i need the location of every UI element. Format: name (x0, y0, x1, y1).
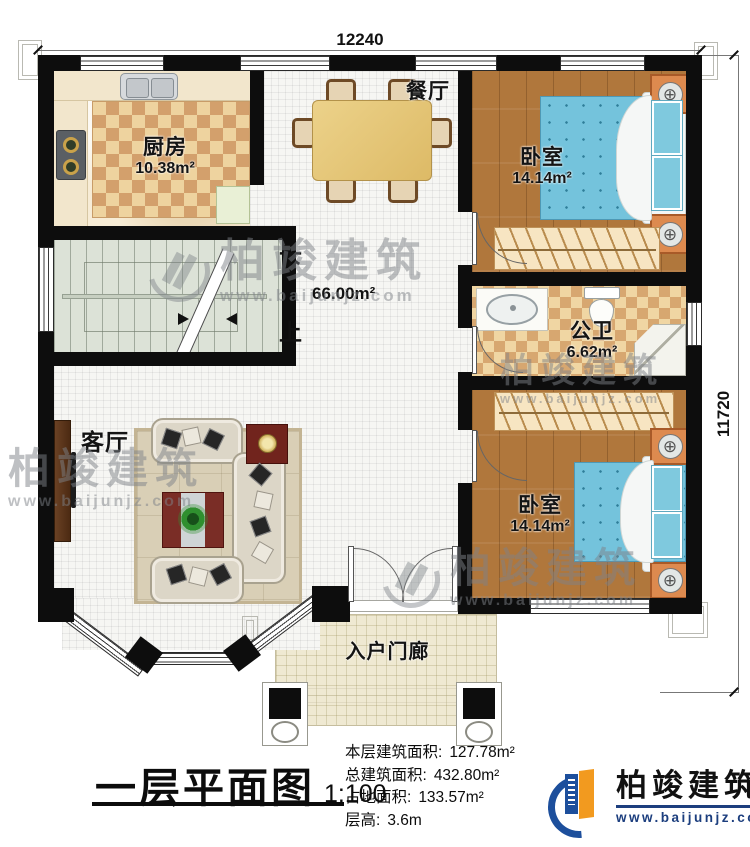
nightstand: ⊕ (650, 428, 690, 465)
nightstand-lamp-icon: ⊕ (658, 434, 683, 459)
dimension-right-label: 11720 (714, 383, 732, 445)
window (415, 55, 497, 71)
wall (458, 483, 472, 614)
bathroom-sink-counter (476, 288, 548, 331)
nightstand-lamp-icon: ⊕ (658, 568, 683, 593)
stove (56, 130, 86, 180)
dimension-top-label: 12240 (320, 30, 400, 50)
room-label-bathroom: 公卫 6.62m² (542, 320, 642, 361)
dining-table (312, 100, 432, 181)
title-underline (92, 802, 344, 806)
sofa-pillow (181, 426, 201, 446)
stat-footprint-area: 占地面积:133.57m² (345, 787, 515, 810)
room-label-kitchen: 厨房 10.38m² (105, 136, 225, 177)
entry-door-leaf (452, 546, 458, 602)
window (530, 598, 650, 614)
porch-column (262, 682, 308, 746)
stairs-arrow-left (226, 313, 237, 325)
wall (38, 55, 54, 247)
stat-total-area: 总建筑面积:432.80m² (345, 765, 515, 788)
porch-column (456, 682, 502, 746)
hall-area-label: 66.00m² (312, 284, 375, 304)
wall (38, 352, 296, 366)
window (80, 55, 164, 71)
room-label-dining: 餐厅 (388, 80, 468, 104)
dimension-line-top (38, 50, 702, 51)
stairs-arrow-right (178, 313, 189, 325)
room-label-porch: 入户门廊 (330, 641, 445, 663)
wall (458, 376, 702, 390)
wall (38, 332, 54, 594)
table-lamp (258, 434, 277, 453)
entry-door-leaf (348, 546, 354, 602)
stat-floor-area: 本层建筑面积:127.78m² (345, 742, 515, 765)
wall (38, 226, 296, 240)
stair-up-label: 上 (279, 313, 302, 347)
door-leaf (472, 326, 477, 374)
bed-pillow (652, 466, 682, 512)
floor-plan-canvas: ⊕ ⊕ ⊕ ⊕ (0, 0, 750, 847)
stat-floor-height: 层高:3.6m (345, 810, 515, 833)
window (240, 55, 330, 71)
brand-logo: 柏竣建筑 www.baijunjz.com (548, 768, 750, 832)
watermark-logo-icon (0, 438, 9, 519)
wardrobe (494, 392, 674, 431)
tv (71, 452, 76, 508)
kitchen-sink (120, 73, 178, 100)
stairs-rail (62, 294, 267, 299)
stair-down-label: 下 (279, 243, 302, 277)
fridge (216, 186, 250, 224)
door-leaf (472, 212, 477, 265)
door-leaf (472, 430, 477, 482)
bay-post (38, 588, 74, 622)
bay-post (312, 586, 350, 622)
wall (458, 272, 702, 286)
room-label-bedroom-bottom: 卧室 14.14m² (490, 494, 590, 535)
brand-name: 柏竣建筑 (616, 768, 750, 804)
nightstand-lamp-icon: ⊕ (658, 222, 683, 247)
wall (686, 55, 702, 302)
dimension-line-right (738, 55, 739, 693)
plan-stats: 本层建筑面积:127.78m² 总建筑面积:432.80m² 占地面积:133.… (345, 742, 515, 832)
dimension-ext (660, 692, 739, 693)
wall (250, 71, 264, 185)
bed-pillow (652, 156, 682, 210)
sofa-pillow (253, 490, 273, 510)
brand-url: www.baijunjz.com (616, 805, 750, 825)
wall (650, 598, 702, 614)
plant (178, 504, 208, 534)
room-label-bedroom-top: 卧室 14.14m² (492, 146, 592, 187)
window (560, 55, 645, 71)
nightstand: ⊕ (650, 562, 690, 599)
bed-pillow (652, 512, 682, 558)
bed-pillow (652, 101, 682, 155)
brand-logo-icon (548, 768, 606, 832)
window (38, 247, 54, 332)
window (686, 302, 702, 346)
room-label-living: 客厅 (65, 430, 145, 456)
